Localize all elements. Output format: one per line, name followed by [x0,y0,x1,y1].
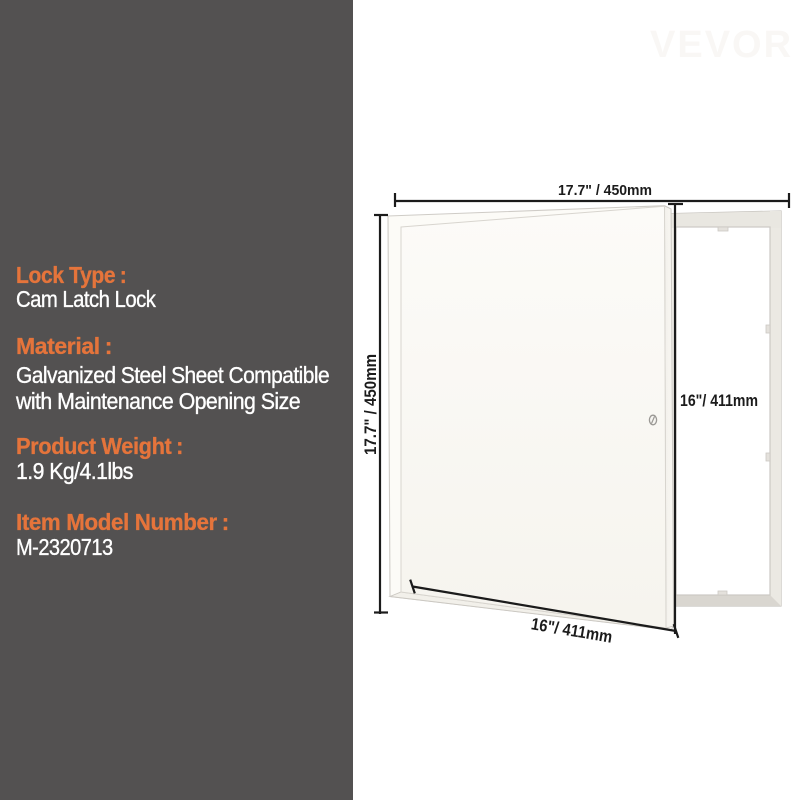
svg-text:16"/ 411mm: 16"/ 411mm [680,391,758,410]
svg-text:17.7" / 450mm: 17.7" / 450mm [558,182,652,199]
svg-text:17.7" / 450mm: 17.7" / 450mm [361,354,380,455]
